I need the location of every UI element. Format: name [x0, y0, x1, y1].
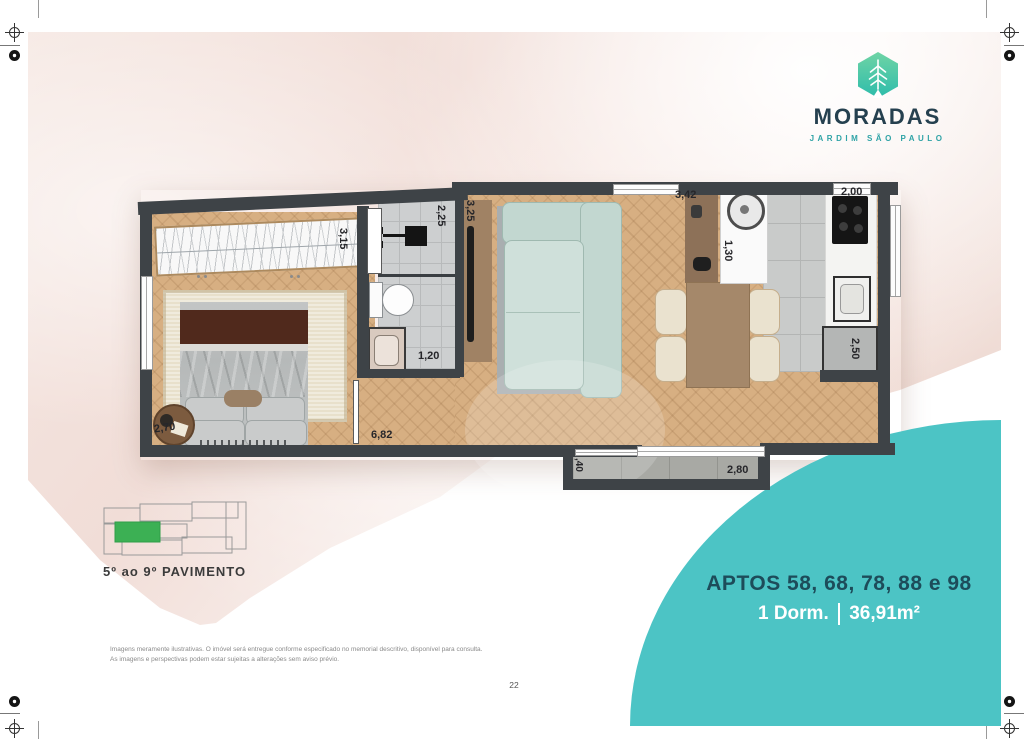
dim-kitchen-width: 2,00: [841, 186, 862, 198]
registration-crosshair-icon: [1000, 719, 1019, 738]
crop-line: [1004, 713, 1024, 714]
wall-bath-bottom: [360, 369, 460, 378]
cooktop: [832, 196, 868, 244]
washer-drum: [740, 205, 749, 214]
unit-area: 36,91m²: [849, 603, 920, 625]
dim-kitchen-depth: 2,50: [849, 338, 861, 359]
washing-machine: [727, 192, 765, 230]
disclaimer-line1: Imagens meramente ilustrativas. O imóvel…: [110, 645, 530, 655]
dim-balcony-depth: ,40: [573, 458, 584, 472]
bathroom-sink-basin: [374, 335, 399, 366]
wall-right: [878, 182, 890, 455]
wardrobe-knobs: [197, 275, 200, 278]
brand-logo: MORADAS JARDIM SÃO PAULO: [795, 52, 960, 143]
registration-dot-icon: [1003, 49, 1016, 62]
balcony-wall-bottom: [563, 479, 770, 490]
dim-balcony-length: 2,80: [727, 464, 748, 476]
unit-numbers: APTOS 58, 68, 78, 88 e 98: [685, 572, 993, 596]
keyplan-diagram: [100, 500, 260, 558]
keyplan: 5º ao 9º PAVIMENTO: [100, 500, 270, 563]
bed: [180, 302, 308, 448]
registration-crosshair-icon: [5, 719, 24, 738]
shower-fixture: [405, 226, 427, 246]
unit-specs: 1 Dorm. 36,91m²: [685, 603, 993, 625]
dim-bedroom-depth: 3,15: [337, 228, 349, 249]
dim-service-depth: 1,30: [722, 240, 734, 261]
kitchen-sink-basin: [840, 284, 864, 314]
wall-kitchen-bottom: [820, 370, 890, 382]
sliding-door: [637, 446, 765, 457]
registration-dot-icon: [1003, 695, 1016, 708]
tv-panel: [460, 200, 492, 362]
wall-bottom: [140, 445, 642, 457]
bedroom-door: [353, 380, 359, 444]
brand-name: MORADAS: [795, 104, 960, 130]
dining-chair: [748, 336, 780, 382]
registration-dot-icon: [8, 695, 21, 708]
crop-tick-top-left: [38, 0, 39, 18]
kitchen-sink: [833, 276, 871, 322]
keyplan-label: 5º ao 9º PAVIMENTO: [103, 564, 263, 579]
dining-chair: [748, 289, 780, 335]
bathroom-door: [367, 208, 382, 274]
registration-crosshair-icon: [5, 23, 24, 42]
unit-dorm: 1 Dorm.: [758, 603, 829, 625]
wall-bath-living: [455, 195, 464, 377]
crop-line: [1004, 45, 1024, 46]
bed-sheet-fold: [180, 344, 308, 351]
bathroom-sink-counter: [368, 327, 406, 375]
floor-plan: 3,15 2,25 3,25 3,42 2,00 1,30 1,20 2,50 …: [135, 170, 925, 500]
crop-line: [0, 713, 20, 714]
bedroom-window: [141, 276, 153, 370]
wardrobe: [154, 217, 361, 276]
leaf-hexagon-icon: [795, 52, 960, 98]
cooktop-burners: [838, 204, 847, 213]
wall-bottom-right: [760, 443, 895, 455]
bed-accent-pillow: [224, 390, 262, 407]
crop-line: [0, 45, 20, 46]
crop-tick-top-right: [986, 0, 987, 18]
living-window: [613, 184, 679, 195]
dim-living-width: 3,25: [464, 200, 476, 221]
service-counter: [720, 184, 768, 284]
kettle: [693, 257, 711, 271]
bar-counter: [685, 195, 718, 283]
tv-screen: [467, 226, 474, 342]
dining-chair: [655, 336, 687, 382]
bed-throw-blanket: [180, 310, 308, 344]
toilet-bowl: [382, 284, 414, 316]
registration-dot-icon: [8, 49, 21, 62]
right-window: [890, 205, 901, 297]
divider: [838, 603, 841, 625]
disclaimer-line2: As imagens e perspectivas podem estar su…: [110, 655, 530, 665]
wardrobe-knobs: [290, 275, 293, 278]
disclaimer: Imagens meramente ilustrativas. O imóvel…: [110, 645, 530, 665]
shower-arm: [383, 234, 407, 237]
toilet-tank: [369, 282, 383, 318]
shower-partition: [378, 274, 458, 277]
page-number: 22: [500, 680, 528, 690]
crop-tick-bottom-left: [38, 721, 39, 739]
keyplan-unit-highlight: [115, 522, 160, 542]
dining-chair: [655, 289, 687, 335]
sofa-cushion-seam: [506, 312, 580, 313]
dining-table: [686, 282, 750, 388]
dim-bath-width: 2,25: [435, 205, 447, 226]
dim-kitchen-living-length: 3,42: [675, 189, 696, 201]
dim-internal-length: 6,82: [371, 429, 392, 441]
dim-bath-length: 1,20: [418, 350, 439, 362]
registration-crosshair-icon: [1000, 23, 1019, 42]
coffee-machine: [691, 205, 702, 218]
brand-subtitle: JARDIM SÃO PAULO: [795, 134, 960, 143]
